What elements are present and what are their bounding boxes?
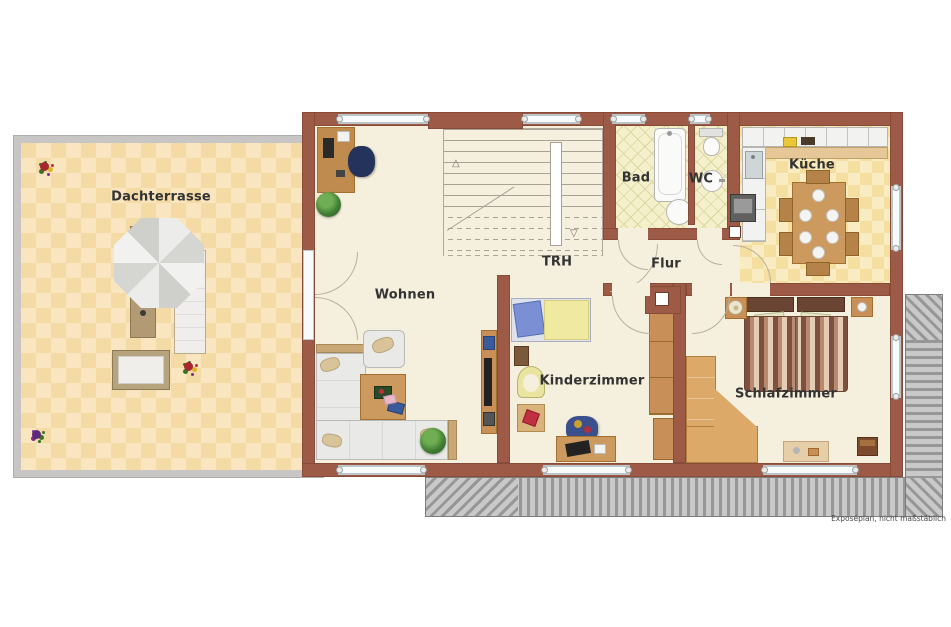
child-bed-pillow <box>513 300 545 338</box>
dining-chair <box>806 262 830 276</box>
plate-icon <box>826 231 839 244</box>
plate-icon <box>812 189 825 202</box>
floor-plan: △ ▽ <box>0 0 951 627</box>
window <box>543 465 630 475</box>
roof-hatch-miter <box>426 478 518 516</box>
cutting-board <box>783 137 797 147</box>
room-label-kueche: Küche <box>789 158 835 173</box>
parasol-icon <box>114 218 204 308</box>
terrace-bench-cushion <box>118 356 164 384</box>
chimney-shaft <box>655 292 669 306</box>
flower-pot-icon <box>32 430 41 439</box>
sink-faucet-icon <box>751 155 755 159</box>
window <box>338 465 425 475</box>
room-label-flur: Flur <box>651 257 681 272</box>
wc-sink-tap <box>719 179 725 182</box>
plant-icon <box>420 428 446 454</box>
window <box>891 336 901 398</box>
child-chair-seat <box>523 374 539 392</box>
window <box>523 114 580 124</box>
small-rug <box>514 346 529 366</box>
window <box>763 465 857 475</box>
roof-hatch-miter <box>906 478 942 516</box>
kitchen-cabinets <box>742 127 888 147</box>
laptop <box>323 138 334 158</box>
plan-footnote: Exposéplan, nicht maßstäblich <box>750 514 946 523</box>
office-chair <box>348 146 375 177</box>
chest-lid <box>860 440 875 446</box>
plate-icon <box>826 209 839 222</box>
plate-icon <box>799 209 812 222</box>
door-opening <box>612 283 650 296</box>
door-opening <box>697 228 722 240</box>
sofa-armrest <box>316 344 366 353</box>
desk-phone <box>336 170 345 177</box>
bathtub-faucet-icon <box>667 131 672 136</box>
roof-hatch-miter <box>906 295 942 340</box>
stair-treads-dashed <box>444 213 604 257</box>
bed-headboard <box>746 297 794 312</box>
room-label-wc: WC <box>689 172 713 187</box>
shelf-items <box>483 336 495 350</box>
stair-down-arrow-icon: ▽ <box>570 229 578 239</box>
dining-chair <box>779 198 793 222</box>
wall-trh-bad <box>603 112 616 232</box>
room-label-dachterrasse: Dachterrasse <box>111 190 211 205</box>
door-opening <box>618 228 648 240</box>
desk-papers <box>337 131 350 142</box>
sofa-armrest <box>448 420 457 460</box>
wall-wohnen-kinderzimmer <box>497 275 510 463</box>
double-bed-duvet <box>744 316 848 392</box>
stove-front <box>733 198 753 214</box>
dining-chair <box>779 232 793 256</box>
wall-block-stairs <box>428 112 523 129</box>
door-opening <box>692 283 730 296</box>
clothes <box>574 420 582 428</box>
dining-chair <box>845 232 859 256</box>
game-piece <box>379 389 384 394</box>
wardrobe-lower <box>653 418 674 460</box>
stair-rail <box>550 142 562 246</box>
room-label-schlafzimmer: Schlafzimmer <box>735 387 837 402</box>
desk-papers <box>594 444 606 454</box>
plant-icon <box>316 192 341 217</box>
bench-item <box>808 448 819 456</box>
wall-shaft <box>729 226 741 238</box>
plate-icon <box>812 246 825 259</box>
door-opening <box>732 283 770 296</box>
dining-chair <box>845 198 859 222</box>
wardrobe <box>649 305 674 415</box>
bed-headboard <box>797 297 845 312</box>
room-label-bad: Bad <box>622 171 651 186</box>
window <box>338 114 428 124</box>
toilet-tank <box>699 128 723 137</box>
terrace-table-knob <box>140 310 146 316</box>
window <box>612 114 645 124</box>
plate-icon <box>799 231 812 244</box>
room-label-wohnen: Wohnen <box>375 288 436 303</box>
tv-screen <box>484 358 492 406</box>
nightstand-item <box>857 302 867 312</box>
bench-item <box>793 447 800 454</box>
shelf-items <box>483 412 495 426</box>
lamp-icon <box>728 300 743 315</box>
staircase: △ ▽ <box>443 128 603 256</box>
stair-up-arrow-icon: △ <box>452 159 460 169</box>
window <box>690 114 710 124</box>
toilet-bowl <box>703 137 720 156</box>
child-bed-blanket <box>544 300 589 340</box>
kitchen-item <box>801 137 815 145</box>
clothes <box>584 426 591 433</box>
bathtub-inner <box>658 133 682 195</box>
corner-wardrobe <box>686 426 758 463</box>
flower-pot-icon <box>40 162 49 171</box>
flower-pot-icon <box>184 362 193 371</box>
room-label-trh: TRH <box>542 255 572 270</box>
terrace-door-opening <box>303 250 314 340</box>
room-label-kinderzimmer: Kinderzimmer <box>539 374 644 389</box>
wall-right <box>890 112 903 477</box>
window <box>891 186 901 250</box>
bedroom-bench <box>783 441 829 462</box>
